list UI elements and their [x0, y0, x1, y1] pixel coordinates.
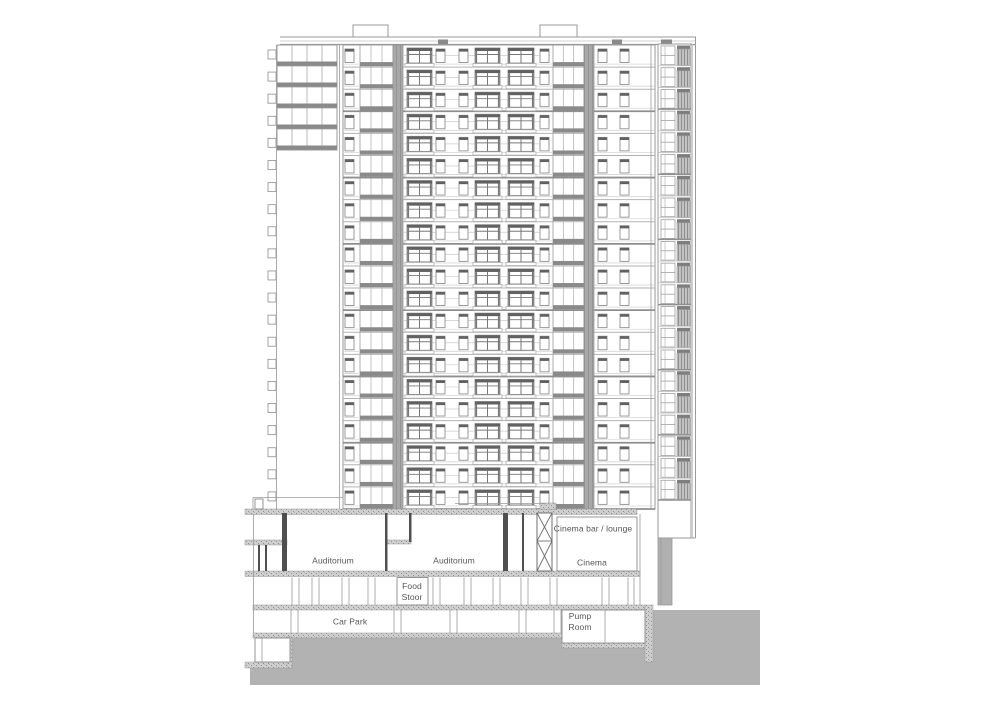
architectural-section-canvas: Auditorium Auditorium Cinema bar / loung…	[0, 0, 1000, 702]
building-section-drawing	[0, 0, 1000, 702]
ground-mass	[250, 610, 760, 685]
